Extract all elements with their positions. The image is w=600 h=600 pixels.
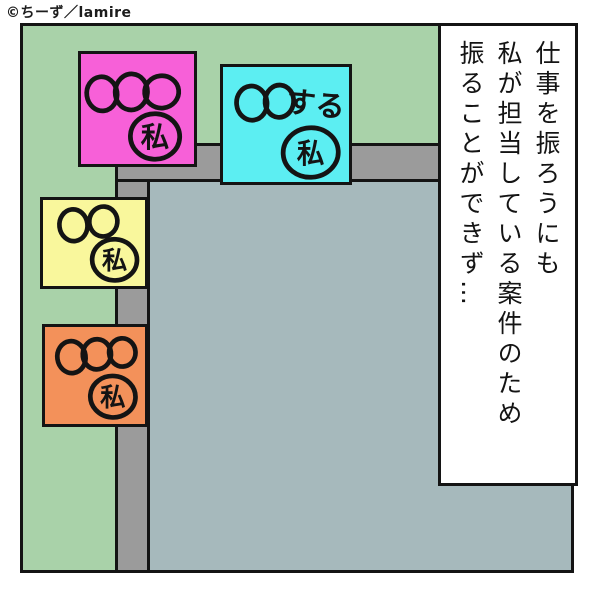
- owner-label: 私: [100, 382, 125, 412]
- speech-line-2: 私が担当している案件のため: [489, 40, 527, 473]
- yellow-note-doodle: 私: [43, 200, 145, 286]
- cyan-note-doodle: する 私: [223, 67, 349, 182]
- sticky-note-yellow: 私: [40, 197, 148, 289]
- sticky-note-pink: 私: [78, 51, 197, 167]
- speech-bubble: 仕事を振ろうにも 私が担当している案件のため 振ることができず…: [438, 23, 578, 486]
- credit-text: ©ちーず／lamire: [6, 2, 132, 22]
- sticky-note-orange: 私: [42, 324, 148, 427]
- comic-page: ©ちーず／lamire 私 する 私 私: [0, 0, 600, 600]
- speech-line-3: 振ることができず…: [451, 40, 489, 473]
- speech-line-1: 仕事を振ろうにも: [527, 40, 565, 473]
- owner-label: 私: [297, 138, 325, 170]
- orange-note-doodle: 私: [45, 327, 145, 424]
- note-action-text: する: [284, 85, 346, 125]
- owner-label: 私: [102, 246, 127, 275]
- owner-label: 私: [141, 121, 169, 154]
- sticky-note-cyan: する 私: [220, 64, 352, 185]
- pink-note-doodle: 私: [81, 54, 194, 164]
